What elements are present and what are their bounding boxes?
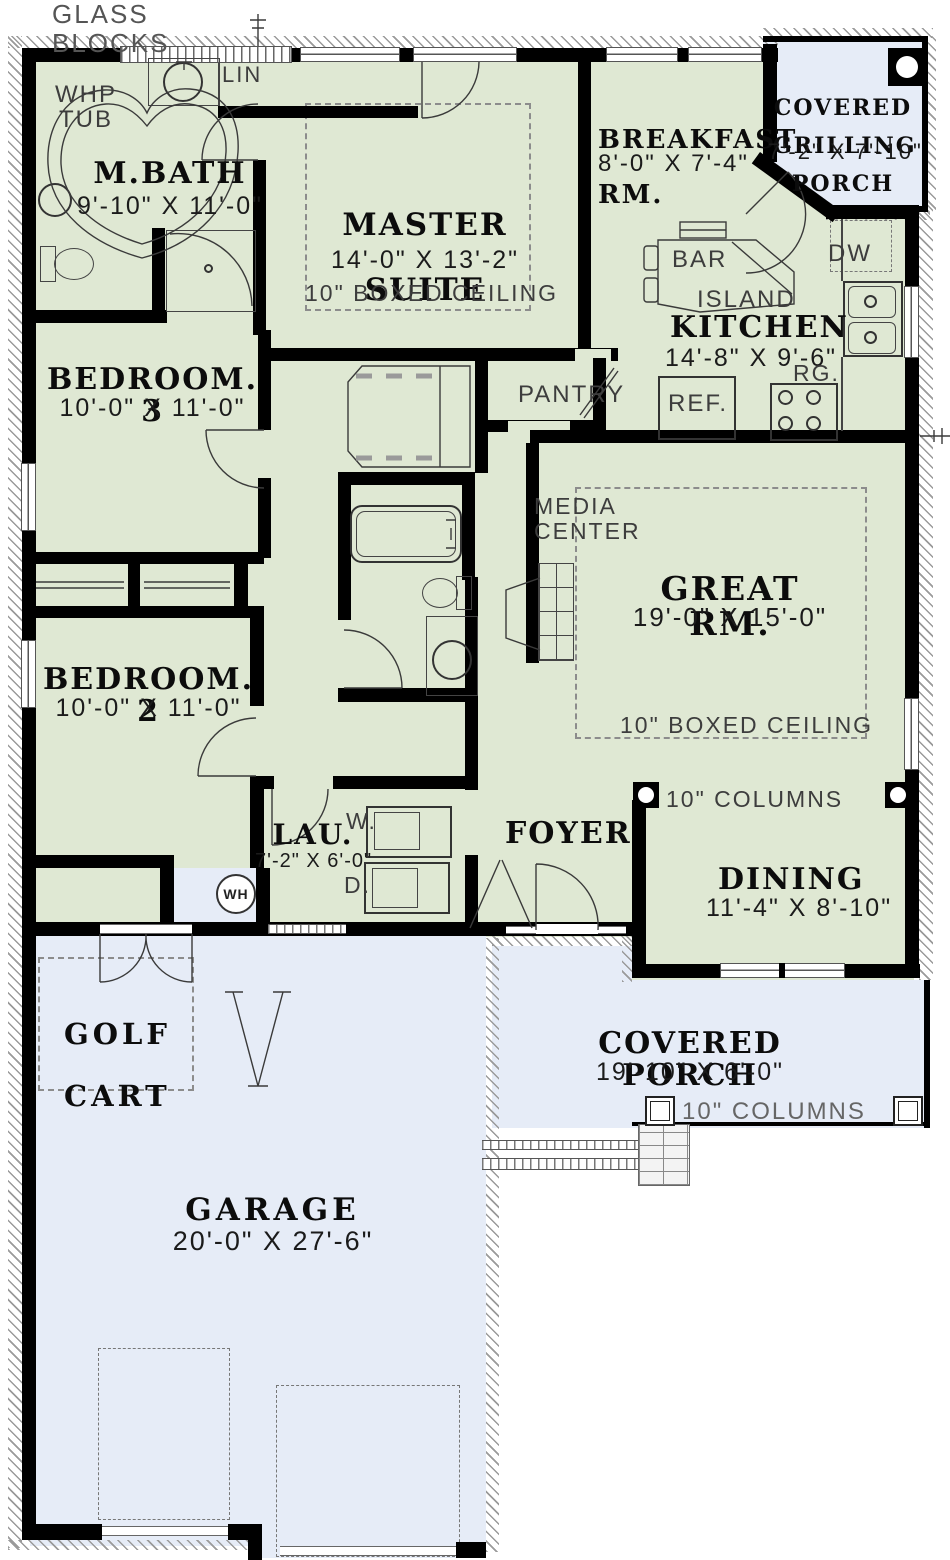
sink-drain [864, 331, 877, 344]
golfcart-line2: CART [64, 1079, 171, 1113]
wall [338, 472, 475, 485]
wall [475, 348, 488, 473]
lin-label: LIN [222, 62, 262, 88]
column-10in [633, 782, 659, 808]
pantry-label: PANTRY [518, 381, 625, 409]
column-10in [885, 782, 911, 808]
wall [248, 1524, 262, 1560]
door-sill [506, 926, 536, 934]
wall [234, 552, 248, 618]
room-greatrm-dims: 19'-0" X 15'-0" [620, 602, 840, 633]
wall [462, 472, 475, 580]
toilet-tank [456, 576, 472, 610]
bathroom-sink [432, 640, 472, 680]
room-foyer-name: FOYER [505, 818, 615, 850]
dryer-label: D. [344, 872, 371, 899]
room-grilling-dims: 7'-2" X 7'-10" [768, 139, 918, 165]
room-laundry-dims: 7'-2" X 6'-0" [255, 850, 371, 873]
porch-wall [763, 36, 928, 42]
burner [778, 416, 793, 431]
grilling-line3: PORCH [792, 171, 894, 197]
window [688, 47, 762, 62]
column-core [896, 56, 918, 78]
master-ceiling-note: 10" BOXED CEILING [305, 280, 535, 307]
room-grilling-name: COVERED GRILLING PORCH [773, 80, 913, 194]
golfcart-line1: GOLF [64, 1017, 171, 1051]
dw-label: DW [828, 240, 872, 268]
pedestal-sink [38, 183, 72, 217]
breakfast-line2: RM. [598, 180, 663, 210]
bar-label: BAR [672, 246, 727, 274]
burner [778, 390, 793, 405]
window [606, 47, 678, 62]
wall [160, 855, 174, 930]
door-sill [598, 926, 626, 934]
room-porch-dims: 19'-10" X 6'-0" [545, 1058, 835, 1087]
room-mbath-dims: 9'-10" X 11'-0" [70, 192, 270, 221]
hatch-porch-step [622, 936, 632, 982]
washer-inner [374, 812, 420, 850]
master-line1: MASTER [342, 207, 507, 243]
walkway-strip [482, 1158, 640, 1170]
hatch-left [8, 36, 22, 1548]
wh-label: WH [216, 886, 256, 902]
room-garage-name: GARAGE [180, 1194, 365, 1227]
wall [465, 855, 478, 935]
wall [152, 228, 165, 323]
wall [22, 310, 167, 323]
garage-door-track-right [276, 1385, 460, 1557]
room-dining-dims: 11'-4" X 8'-10" [706, 894, 866, 923]
media-line2: CENTER [534, 518, 641, 544]
glass-blocks-label: GLASS BLOCKS [52, 0, 170, 58]
glass-blocks-line2: BLOCKS [52, 28, 170, 58]
bathtub-inner [356, 511, 456, 557]
front-door-opening [536, 924, 598, 934]
room-mbath-name: M.BATH [78, 158, 262, 190]
window [21, 463, 36, 531]
counter-edge [841, 357, 843, 431]
door-sill [100, 924, 192, 934]
hatch-grill-right [928, 36, 936, 212]
room-golfcart-name: GOLF CART [64, 988, 174, 1112]
toilet-bowl [54, 248, 94, 280]
rg-label: RG. [793, 360, 840, 387]
walkway-strip [482, 1140, 640, 1150]
room-garage-dims: 20'-0" X 27'-6" [168, 1226, 378, 1257]
washer-label: W. [346, 808, 377, 835]
wall [578, 48, 591, 360]
wall [250, 776, 274, 789]
greatrm-ceiling-note: 10" BOXED CEILING [620, 712, 840, 739]
wall [256, 868, 270, 930]
porch-column [893, 1096, 923, 1126]
window [300, 47, 400, 62]
whp-tub-label: WHP TUB [42, 82, 130, 132]
garage-door [102, 1526, 228, 1536]
columns-label-greatrm: 10" COLUMNS [666, 786, 843, 813]
wall [258, 478, 271, 558]
wall [632, 800, 646, 978]
window [413, 47, 517, 62]
hatch-porch-top [492, 936, 632, 946]
whp-line2: TUB [59, 106, 113, 133]
room-bedroom3-dims: 10'-0" X 11'-0" [45, 394, 260, 423]
bathroom-sink [163, 62, 203, 102]
wall [258, 348, 618, 361]
wall [456, 1542, 486, 1558]
dryer-inner [372, 868, 418, 908]
hatch-right [919, 205, 933, 980]
room-dining-name: DINING [718, 864, 853, 896]
shower-drain [204, 264, 213, 273]
toilet-bowl [422, 578, 458, 608]
room-kitchen-name: KITCHEN [670, 312, 830, 344]
media-center-label: MEDIA CENTER [534, 494, 641, 544]
columns-label-porch: 10" COLUMNS [682, 1098, 866, 1126]
wall [128, 552, 140, 618]
window [904, 698, 919, 770]
window [904, 286, 919, 358]
wall [22, 552, 264, 564]
media-center-shelves [538, 563, 574, 661]
door-sill [268, 924, 346, 934]
room-breakfast-dims: 8'-0" X 7'-4" [598, 150, 748, 178]
glass-blocks-line1: GLASS [52, 0, 149, 29]
window-mullion [779, 963, 785, 978]
hatch-garage-bottom [8, 1540, 254, 1550]
wall [333, 776, 478, 789]
wall [22, 930, 36, 1540]
porch-edge [924, 980, 930, 1128]
sink-drain [864, 295, 877, 308]
ref-label: REF. [668, 390, 728, 418]
porch-steps [638, 1124, 690, 1186]
whp-line1: WHP [55, 81, 117, 108]
grilling-line1: COVERED [774, 95, 912, 121]
column-core [890, 787, 906, 803]
wall [22, 855, 174, 868]
burner [806, 416, 821, 431]
porch-wall [826, 206, 926, 212]
wall [22, 1524, 102, 1540]
media-line1: MEDIA [534, 493, 617, 519]
garage-door [280, 1546, 456, 1556]
hatch-garage-east [486, 938, 499, 1552]
wall [218, 106, 418, 118]
wall [22, 606, 264, 618]
window [21, 640, 36, 708]
garage-door-track-left [98, 1348, 230, 1520]
room-bedroom2-dims: 10'-0" X 11'-0" [41, 694, 256, 723]
floor-plan: GLASS BLOCKS WHP TUB LIN M.BATH 9'-10" X… [0, 0, 950, 1560]
room-master-dims: 14'-0" X 13'-2" [330, 246, 520, 275]
burner [806, 390, 821, 405]
porch-column [645, 1096, 675, 1126]
column-core [638, 787, 654, 803]
